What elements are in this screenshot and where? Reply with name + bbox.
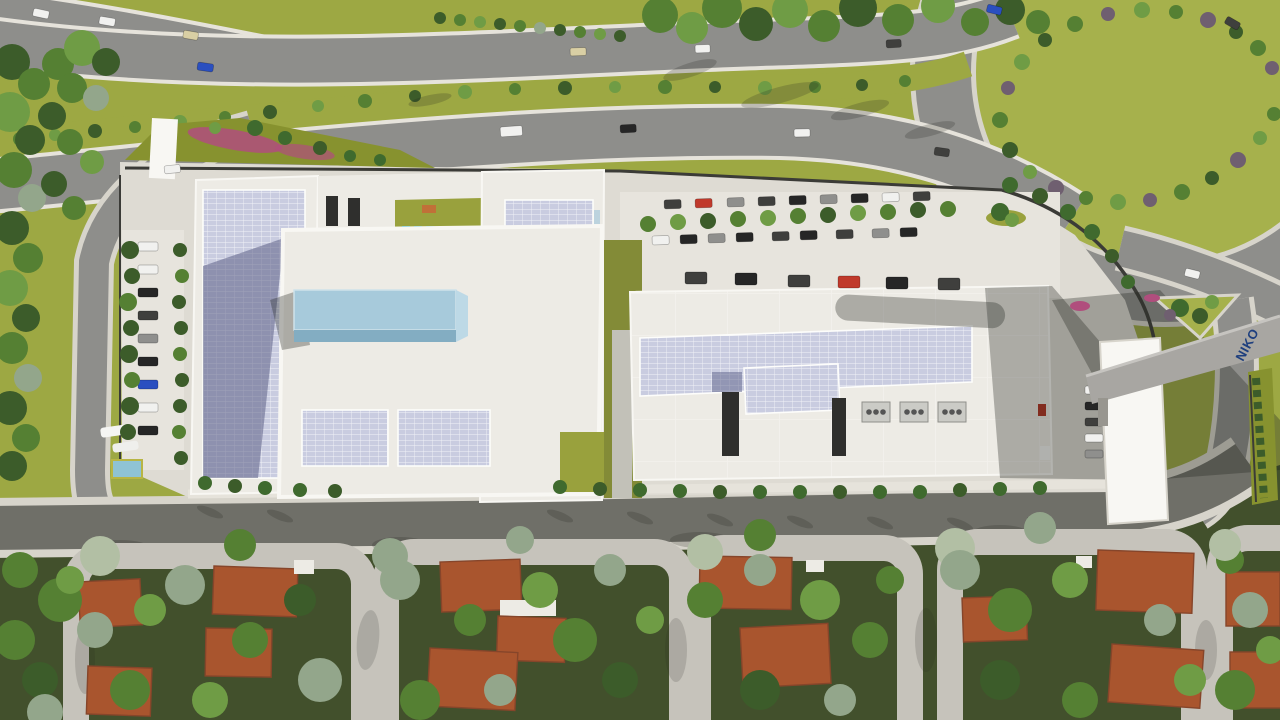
flower-patch: [1070, 301, 1090, 311]
north-wing-window: [326, 196, 338, 226]
blue-car: [197, 62, 214, 72]
solar-band-shaded: [712, 372, 742, 392]
courtyard-canopy: [422, 205, 436, 213]
car: [695, 44, 710, 53]
car: [620, 124, 636, 133]
site-plan-canvas: NIKO: [0, 0, 1280, 720]
car: [570, 47, 586, 56]
car: [934, 147, 950, 157]
aerial-render: NIKO: [0, 0, 1280, 720]
blue-rooftop-unit-end: [456, 290, 468, 342]
north-wing-window: [348, 198, 360, 226]
van: [500, 125, 523, 137]
flower-patch-2: [1144, 294, 1160, 302]
bridge-support: [1098, 398, 1108, 426]
blue-rooftop-unit: [294, 290, 456, 330]
central-solar-array-2: [398, 410, 490, 466]
skylight-strip-1: [722, 392, 739, 456]
central-solar-array-1: [302, 410, 388, 466]
blue-rooftop-unit-side: [294, 330, 456, 342]
car: [164, 164, 181, 174]
hvac-units: [862, 402, 966, 422]
car: [794, 129, 810, 137]
car: [886, 39, 901, 48]
blue-canopy: [112, 460, 142, 478]
skylight-strip-2: [832, 398, 846, 456]
small-solar-array: [744, 364, 840, 414]
